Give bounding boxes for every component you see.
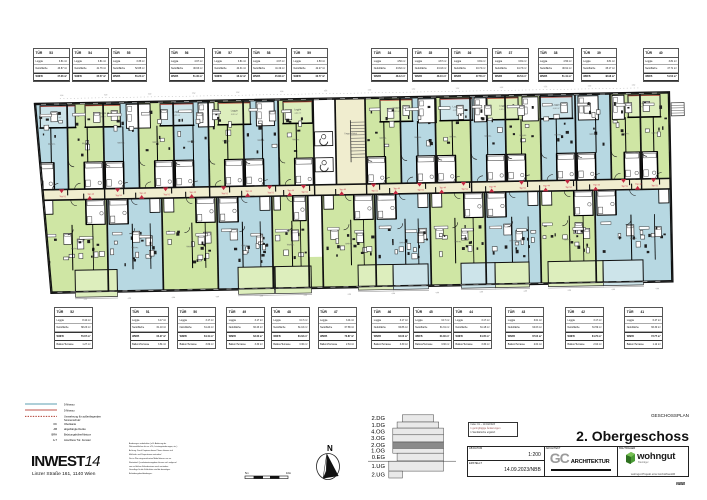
svg-text:0.EG: 0.EG xyxy=(372,455,386,461)
svg-text:2.UG: 2.UG xyxy=(371,472,385,478)
svg-text:4.OG: 4.OG xyxy=(371,429,385,435)
svg-text:1.UG: 1.UG xyxy=(371,464,385,470)
svg-text:2.DG: 2.DG xyxy=(371,416,385,422)
svg-text:1.DG: 1.DG xyxy=(371,423,385,429)
svg-text:1.OG: 1.OG xyxy=(371,449,385,455)
svg-text:3.OG: 3.OG xyxy=(371,436,385,442)
